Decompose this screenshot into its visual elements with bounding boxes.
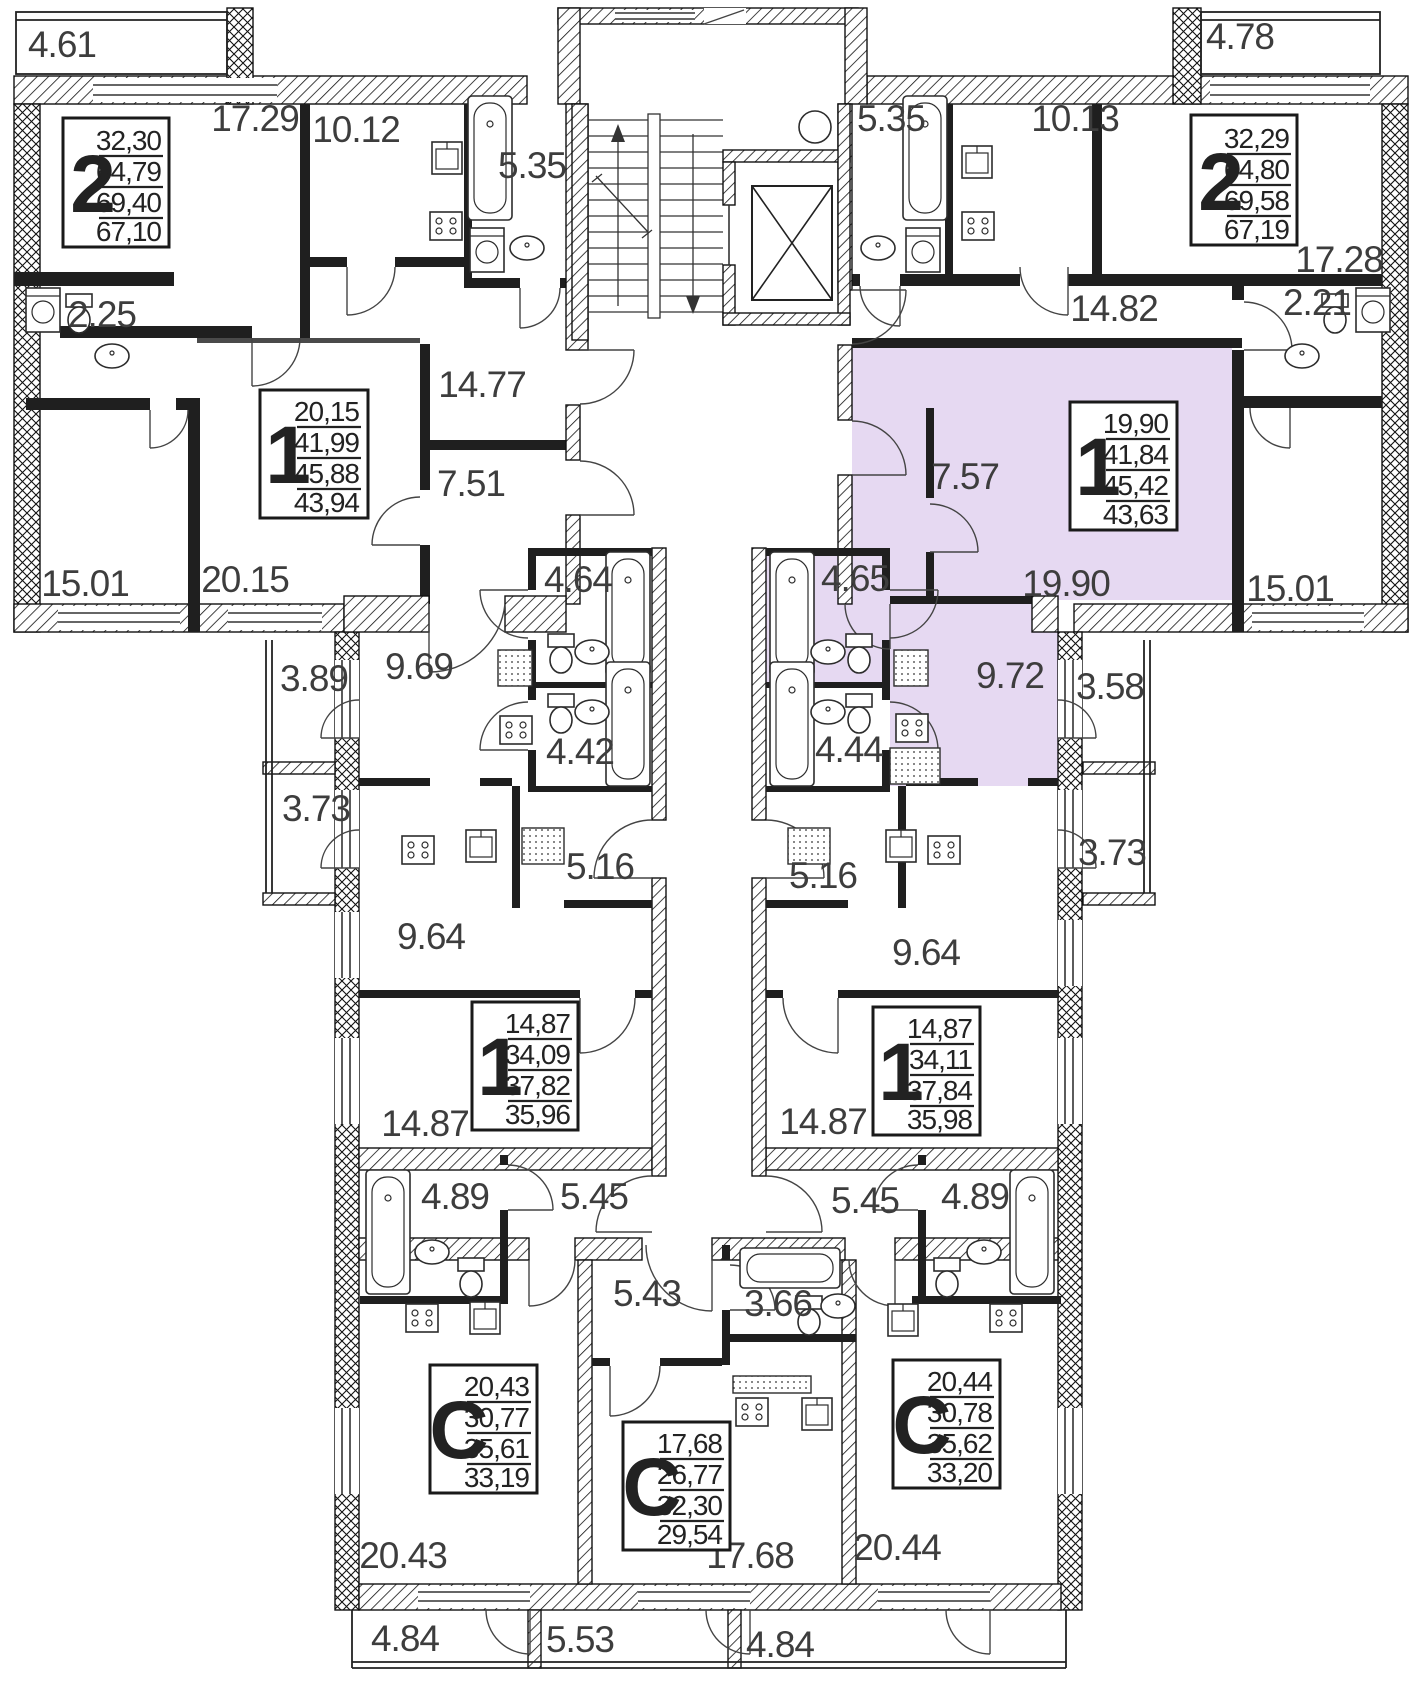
apartment-area-value: 41,84 [1103,439,1168,470]
apartment-area-value: 67,10 [96,216,161,247]
apartment-area-value: 64,79 [96,156,161,187]
door [766,1176,822,1232]
sink-icon [510,236,544,260]
door [520,288,560,328]
window [1058,1038,1082,1124]
bathtub-icon [366,1170,410,1294]
room-area-label-4-64: 4.64 [544,559,612,600]
room-area-label-3-58: 3.58 [1076,666,1144,707]
bathtub-icon [740,1248,840,1288]
sink-icon [811,700,845,724]
room-area-label-17-28: 17.28 [1295,239,1383,280]
window [1252,606,1364,630]
sink-icon [821,1294,855,1318]
door [1250,408,1290,448]
room-area-label-14-87-left: 14.87 [381,1103,469,1144]
window [615,10,695,22]
apartment-area-value: 35,62 [927,1428,992,1459]
apartment-area-value: 67,19 [1224,214,1289,245]
room-area-label-20-43: 20.43 [359,1535,447,1576]
window [1058,1408,1082,1494]
kitchen-counter [890,748,940,784]
apartment-area-value: 37,84 [907,1075,972,1106]
window [228,606,322,630]
washer-icon [1356,288,1390,332]
kitchen-sink-icon [470,1302,500,1334]
apartment-area-value: 41,99 [294,427,359,458]
apartment-area-value: 33,20 [927,1457,992,1488]
apartment-info-box-2-top-left[interactable]: 2 32,30 64,79 69,40 67,10 [63,118,169,247]
stair-down-arrow-icon [686,134,700,314]
door [946,1610,990,1654]
window [1210,78,1370,102]
door [486,1610,530,1654]
sink-icon [967,1240,1001,1264]
apartment-area-value: 32,30 [96,125,161,156]
apartment-area-value: 45,88 [294,458,359,489]
window [418,1586,530,1608]
room-area-label-19-90: 19.90 [1022,563,1110,604]
door [508,1165,553,1210]
stove-icon [430,212,462,240]
room-area-label-15-01-left: 15.01 [41,563,129,604]
room-area-label-4-84-left: 4.84 [371,1618,439,1659]
bathtub-icon [1010,1170,1054,1294]
apartment-area-value: 20,44 [927,1366,992,1397]
garbage-chute-icon [799,111,831,143]
apartment-area-value: 30,77 [464,1402,529,1433]
kitchen-sink-icon [962,146,992,178]
washer-icon [470,228,504,272]
bathtub-icon [606,552,650,676]
room-area-label-5-16-right: 5.16 [789,855,857,896]
door [610,1366,660,1416]
sink-icon [415,1240,449,1264]
room-area-label-20-15: 20.15 [201,559,289,600]
elevator [723,104,850,325]
internal-walls [14,104,1382,1584]
apartment-area-value: 26,77 [657,1459,722,1490]
apartment-area-value: 43,63 [1103,499,1168,530]
door [580,998,635,1053]
stove-icon [962,212,994,240]
apartment-area-value: 20,15 [294,396,359,427]
kitchen-cabinet [498,650,532,686]
floor-plan-page: 4.61 17.29 10.12 5.35 5.35 10.13 4.78 17… [0,0,1418,1684]
window [58,606,180,630]
floor-plan: 4.61 17.29 10.12 5.35 5.35 10.13 4.78 17… [0,0,1418,1684]
apartment-info-box-studio-mid[interactable]: C 17,68 26,77 32,30 29,54 [622,1422,730,1550]
apartment-area-value: 35,98 [907,1104,972,1135]
door [1020,267,1068,315]
stove-icon [990,1304,1022,1332]
apartment-area-value: 34,09 [505,1039,570,1070]
room-area-label-5-35-right: 5.35 [857,98,925,139]
window [335,912,359,978]
window [638,1586,750,1608]
stair-rail [648,114,660,318]
room-area-label-4-89-right: 4.89 [941,1176,1009,1217]
bathtub-icon [770,552,814,676]
door [852,290,906,344]
apartment-info-box-studio-right[interactable]: C 20,44 30,78 35,62 33,20 [892,1360,1000,1488]
washer-icon [906,228,940,272]
room-area-label-5-45-right: 5.45 [831,1180,899,1221]
room-area-label-20-44: 20.44 [853,1527,941,1568]
apartment-area-value: 35,96 [505,1099,570,1130]
window [1058,920,1082,986]
window [335,1408,359,1494]
building-entrance [704,8,746,24]
room-area-label-5-45-left: 5.45 [560,1176,628,1217]
room-area-label-10-12: 10.12 [312,109,400,150]
door [580,350,634,404]
apartment-area-value: 69,58 [1224,185,1289,216]
room-area-label-9-64-right: 9.64 [892,932,960,973]
apartment-area-value: 69,40 [96,187,161,218]
room-area-label-14-77: 14.77 [438,364,526,405]
room-area-label-7-51: 7.51 [437,463,505,504]
kitchen-counter [733,1376,811,1393]
stove-icon [402,836,434,864]
room-area-label-4-89-left: 4.89 [421,1176,489,1217]
kitchen-sink-icon [886,830,916,862]
apartment-area-value: 32,30 [657,1490,722,1521]
room-area-label-5-16-left: 5.16 [566,846,634,887]
room-area-label-2-21: 2.21 [1283,282,1351,323]
sink-icon [811,640,845,664]
room-area-label-14-82: 14.82 [1070,288,1158,329]
room-area-label-14-87-right: 14.87 [779,1101,867,1142]
room-area-label-3-73-left: 3.73 [282,788,350,829]
room-area-label-balcony-top-right: 4.78 [1206,16,1274,57]
apartment-area-value: 29,54 [657,1519,722,1550]
apartment-info-box-1-mid-right[interactable]: 1 14,87 34,11 37,84 35,98 [873,1007,980,1135]
external-walls [14,8,1408,1668]
apartment-area-value: 35,61 [464,1433,529,1464]
apartment-info-box-studio-left[interactable]: C 20,43 30,77 35,61 33,19 [429,1365,537,1493]
kitchen-sink-icon [432,142,462,174]
room-area-label-9-69: 9.69 [385,646,453,687]
sink-icon [575,640,609,664]
room-area-label-5-43: 5.43 [613,1273,681,1314]
room-area-label-4-44: 4.44 [815,729,883,770]
sink-icon [1285,344,1319,368]
kitchen-counter [522,828,564,864]
washer-icon [26,288,60,332]
staircase [588,114,723,318]
stair-up-arrow-icon [611,124,625,306]
room-area-label-9-72: 9.72 [976,655,1044,696]
apartment-area-value: 32,29 [1224,123,1289,154]
door [150,410,188,448]
kitchen-sink-icon [888,1304,918,1336]
apartment-area-value: 20,43 [464,1371,529,1402]
sink-icon [861,236,895,260]
apartment-area-value: 14,87 [907,1013,972,1044]
apartment-info-box-1-right-selected[interactable]: 1 19,90 41,84 45,42 43,63 [1070,402,1177,530]
door [372,497,420,545]
toilet-icon [548,634,574,673]
toilet-icon [458,1258,484,1297]
apartment-area-value: 30,78 [927,1397,992,1428]
apartment-area-value: 17,68 [657,1428,722,1459]
stove-icon [736,1398,768,1426]
toilet-icon [846,694,872,733]
room-area-label-3-89: 3.89 [280,658,348,699]
room-area-label-3-73-right: 3.73 [1078,832,1146,873]
apartment-info-box-2-top-right[interactable]: 2 32,29 64,80 69,58 67,19 [1191,115,1297,245]
door [860,286,900,326]
toilet-icon [846,634,872,673]
room-area-label-2-25: 2.25 [68,294,136,335]
apartment-area-value: 64,80 [1224,154,1289,185]
door [529,1260,575,1306]
window [335,1038,359,1124]
apartment-area-value: 37,82 [505,1070,570,1101]
stove-icon [896,714,928,742]
room-area-label-17-29: 17.29 [211,98,299,139]
stove-icon [500,716,532,744]
door [580,461,634,515]
apartment-area-value: 33,19 [464,1462,529,1493]
apartment-area-value: 45,42 [1103,470,1168,501]
room-area-label-3-66: 3.66 [744,1283,812,1324]
stove-icon [406,1304,438,1332]
balcony-parapets [16,12,1380,1668]
room-area-label-balcony-top-left: 4.61 [28,24,96,65]
sink-icon [575,700,609,724]
toilet-icon [548,694,574,733]
kitchen-sink-icon [466,830,496,862]
door [783,998,838,1053]
sink-icon [95,344,129,368]
kitchen-cabinet [894,650,928,686]
room-area-label-4-84-right: 4.84 [746,1624,814,1665]
room-area-label-5-35-left: 5.35 [498,145,566,186]
stove-icon [928,836,960,864]
room-area-label-4-42: 4.42 [546,731,614,772]
apartment-area-value: 43,94 [294,487,359,518]
room-area-label-15-01-right: 15.01 [1246,568,1334,609]
apartment-area-value: 19,90 [1103,408,1168,439]
apartment-area-value: 14,87 [505,1008,570,1039]
room-area-label-10-13: 10.13 [1031,98,1119,139]
apartment-area-value: 34,11 [909,1044,972,1075]
bathtub-icon [770,662,814,786]
apartment-info-box-1-left[interactable]: 1 20,15 41,99 45,88 43,94 [260,390,368,518]
door [252,338,300,386]
room-area-label-9-64-left: 9.64 [397,916,465,957]
toilet-icon [934,1258,960,1297]
door [347,267,395,315]
room-area-label-4-65: 4.65 [821,558,889,599]
room-area-label-7-57: 7.57 [931,456,999,497]
window [878,1586,990,1608]
apartment-info-box-1-mid-left[interactable]: 1 14,87 34,09 37,82 35,96 [472,1002,578,1130]
kitchen-sink-icon [802,1398,832,1430]
room-area-label-5-53: 5.53 [546,1619,614,1660]
